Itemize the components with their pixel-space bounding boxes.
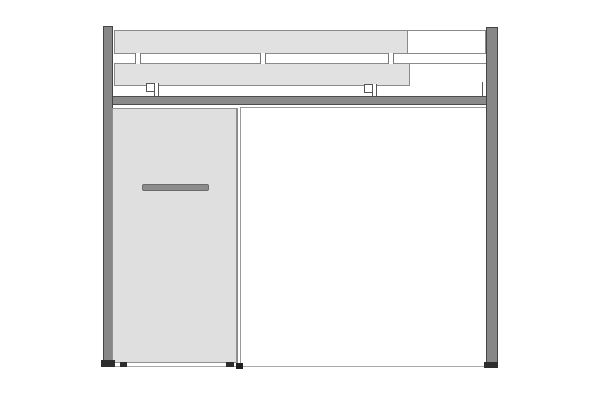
floor-line <box>113 366 486 367</box>
cabinet-elevation-drawing <box>0 0 600 400</box>
door-handle <box>142 184 209 191</box>
right-post-foot <box>484 362 498 368</box>
mounting-clip-left-stem <box>154 83 159 97</box>
shelf-connector-middle <box>260 53 266 64</box>
shelf-connector-left <box>135 53 141 64</box>
open-bay-panel <box>240 107 486 367</box>
upper-shelf-board <box>114 30 408 54</box>
divider-foot <box>236 363 243 369</box>
left-post-foot <box>101 360 115 367</box>
cabinet-door <box>112 108 237 363</box>
shelf-connector-right <box>388 53 394 64</box>
right-side-post <box>486 27 498 368</box>
support-beam <box>103 96 498 105</box>
door-foot-right <box>226 362 234 367</box>
cabinet-side-divider <box>237 108 241 366</box>
door-foot-left <box>120 362 127 367</box>
lower-shelf-edge-line <box>410 63 486 64</box>
